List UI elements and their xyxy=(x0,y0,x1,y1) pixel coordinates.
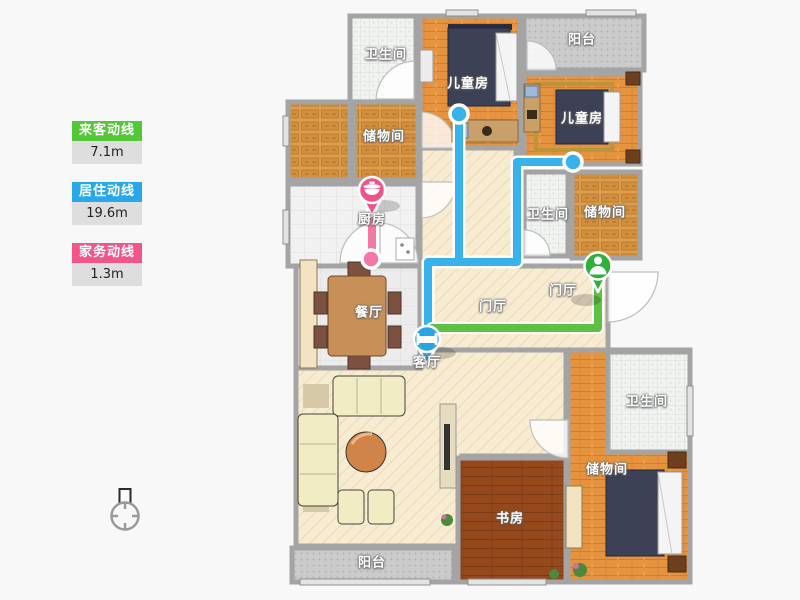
plant-flower xyxy=(573,563,579,569)
room-study xyxy=(458,458,566,582)
door-arc-entrance xyxy=(608,272,658,322)
coffee-table xyxy=(346,432,386,472)
armchair xyxy=(338,490,364,524)
window xyxy=(300,579,430,585)
legend-resident-button[interactable]: 居住动线 xyxy=(72,182,142,202)
chair xyxy=(388,292,401,314)
room-storage-2 xyxy=(572,172,640,258)
compass-icon xyxy=(112,489,139,530)
window xyxy=(446,10,478,16)
dining-table xyxy=(328,276,386,356)
route-endpoint xyxy=(564,153,582,171)
legend-household-button[interactable]: 家务动线 xyxy=(72,243,142,263)
route-endpoint xyxy=(362,250,380,268)
nightstand xyxy=(668,452,686,468)
bench xyxy=(566,486,582,548)
window xyxy=(586,10,636,16)
plant-flower xyxy=(442,515,447,520)
bed-mattress xyxy=(604,92,620,142)
floorplan-page: 来客动线 7.1m 居住动线 19.6m 家务动线 1.3m 卫生间 阳台 儿童… xyxy=(0,0,800,600)
legend-item-household: 家务动线 1.3m xyxy=(72,243,142,286)
room-bath-br xyxy=(608,352,690,452)
window xyxy=(687,386,693,436)
pin-shadow xyxy=(571,294,601,306)
floorplan-canvas xyxy=(0,0,800,600)
bed xyxy=(556,90,608,144)
room-balcony-bottom xyxy=(292,548,454,582)
appliance-knob xyxy=(406,250,410,254)
nightstand xyxy=(626,150,640,163)
kitchen-appliance xyxy=(396,238,414,260)
route-endpoint xyxy=(450,105,468,123)
window xyxy=(283,210,289,244)
window xyxy=(283,116,289,146)
nightstand xyxy=(626,72,640,85)
legend-visitor-value: 7.1m xyxy=(72,141,142,164)
armchair xyxy=(368,490,394,524)
legend-item-resident: 居住动线 19.6m xyxy=(72,182,142,225)
tv xyxy=(444,424,450,470)
legend-item-visitor: 来客动线 7.1m xyxy=(72,121,142,164)
room-closet-left xyxy=(288,102,350,180)
plant xyxy=(549,569,559,579)
wardrobe xyxy=(420,50,433,82)
room-storage-1 xyxy=(354,102,418,180)
chair xyxy=(314,292,327,314)
legend-household-value: 1.3m xyxy=(72,263,142,286)
rug xyxy=(303,384,329,408)
window xyxy=(468,579,546,585)
bed-mattress xyxy=(496,33,517,101)
chair xyxy=(314,326,327,348)
nightstand xyxy=(668,556,686,572)
dresser-item xyxy=(482,126,492,136)
laptop xyxy=(525,86,538,97)
appliance-knob xyxy=(400,243,404,247)
chair xyxy=(388,326,401,348)
bed xyxy=(606,470,664,556)
sofa xyxy=(333,376,405,416)
legend-visitor-button[interactable]: 来客动线 xyxy=(72,121,142,141)
sofa xyxy=(298,414,338,506)
desk-item xyxy=(527,110,537,119)
legend-resident-value: 19.6m xyxy=(72,202,142,225)
